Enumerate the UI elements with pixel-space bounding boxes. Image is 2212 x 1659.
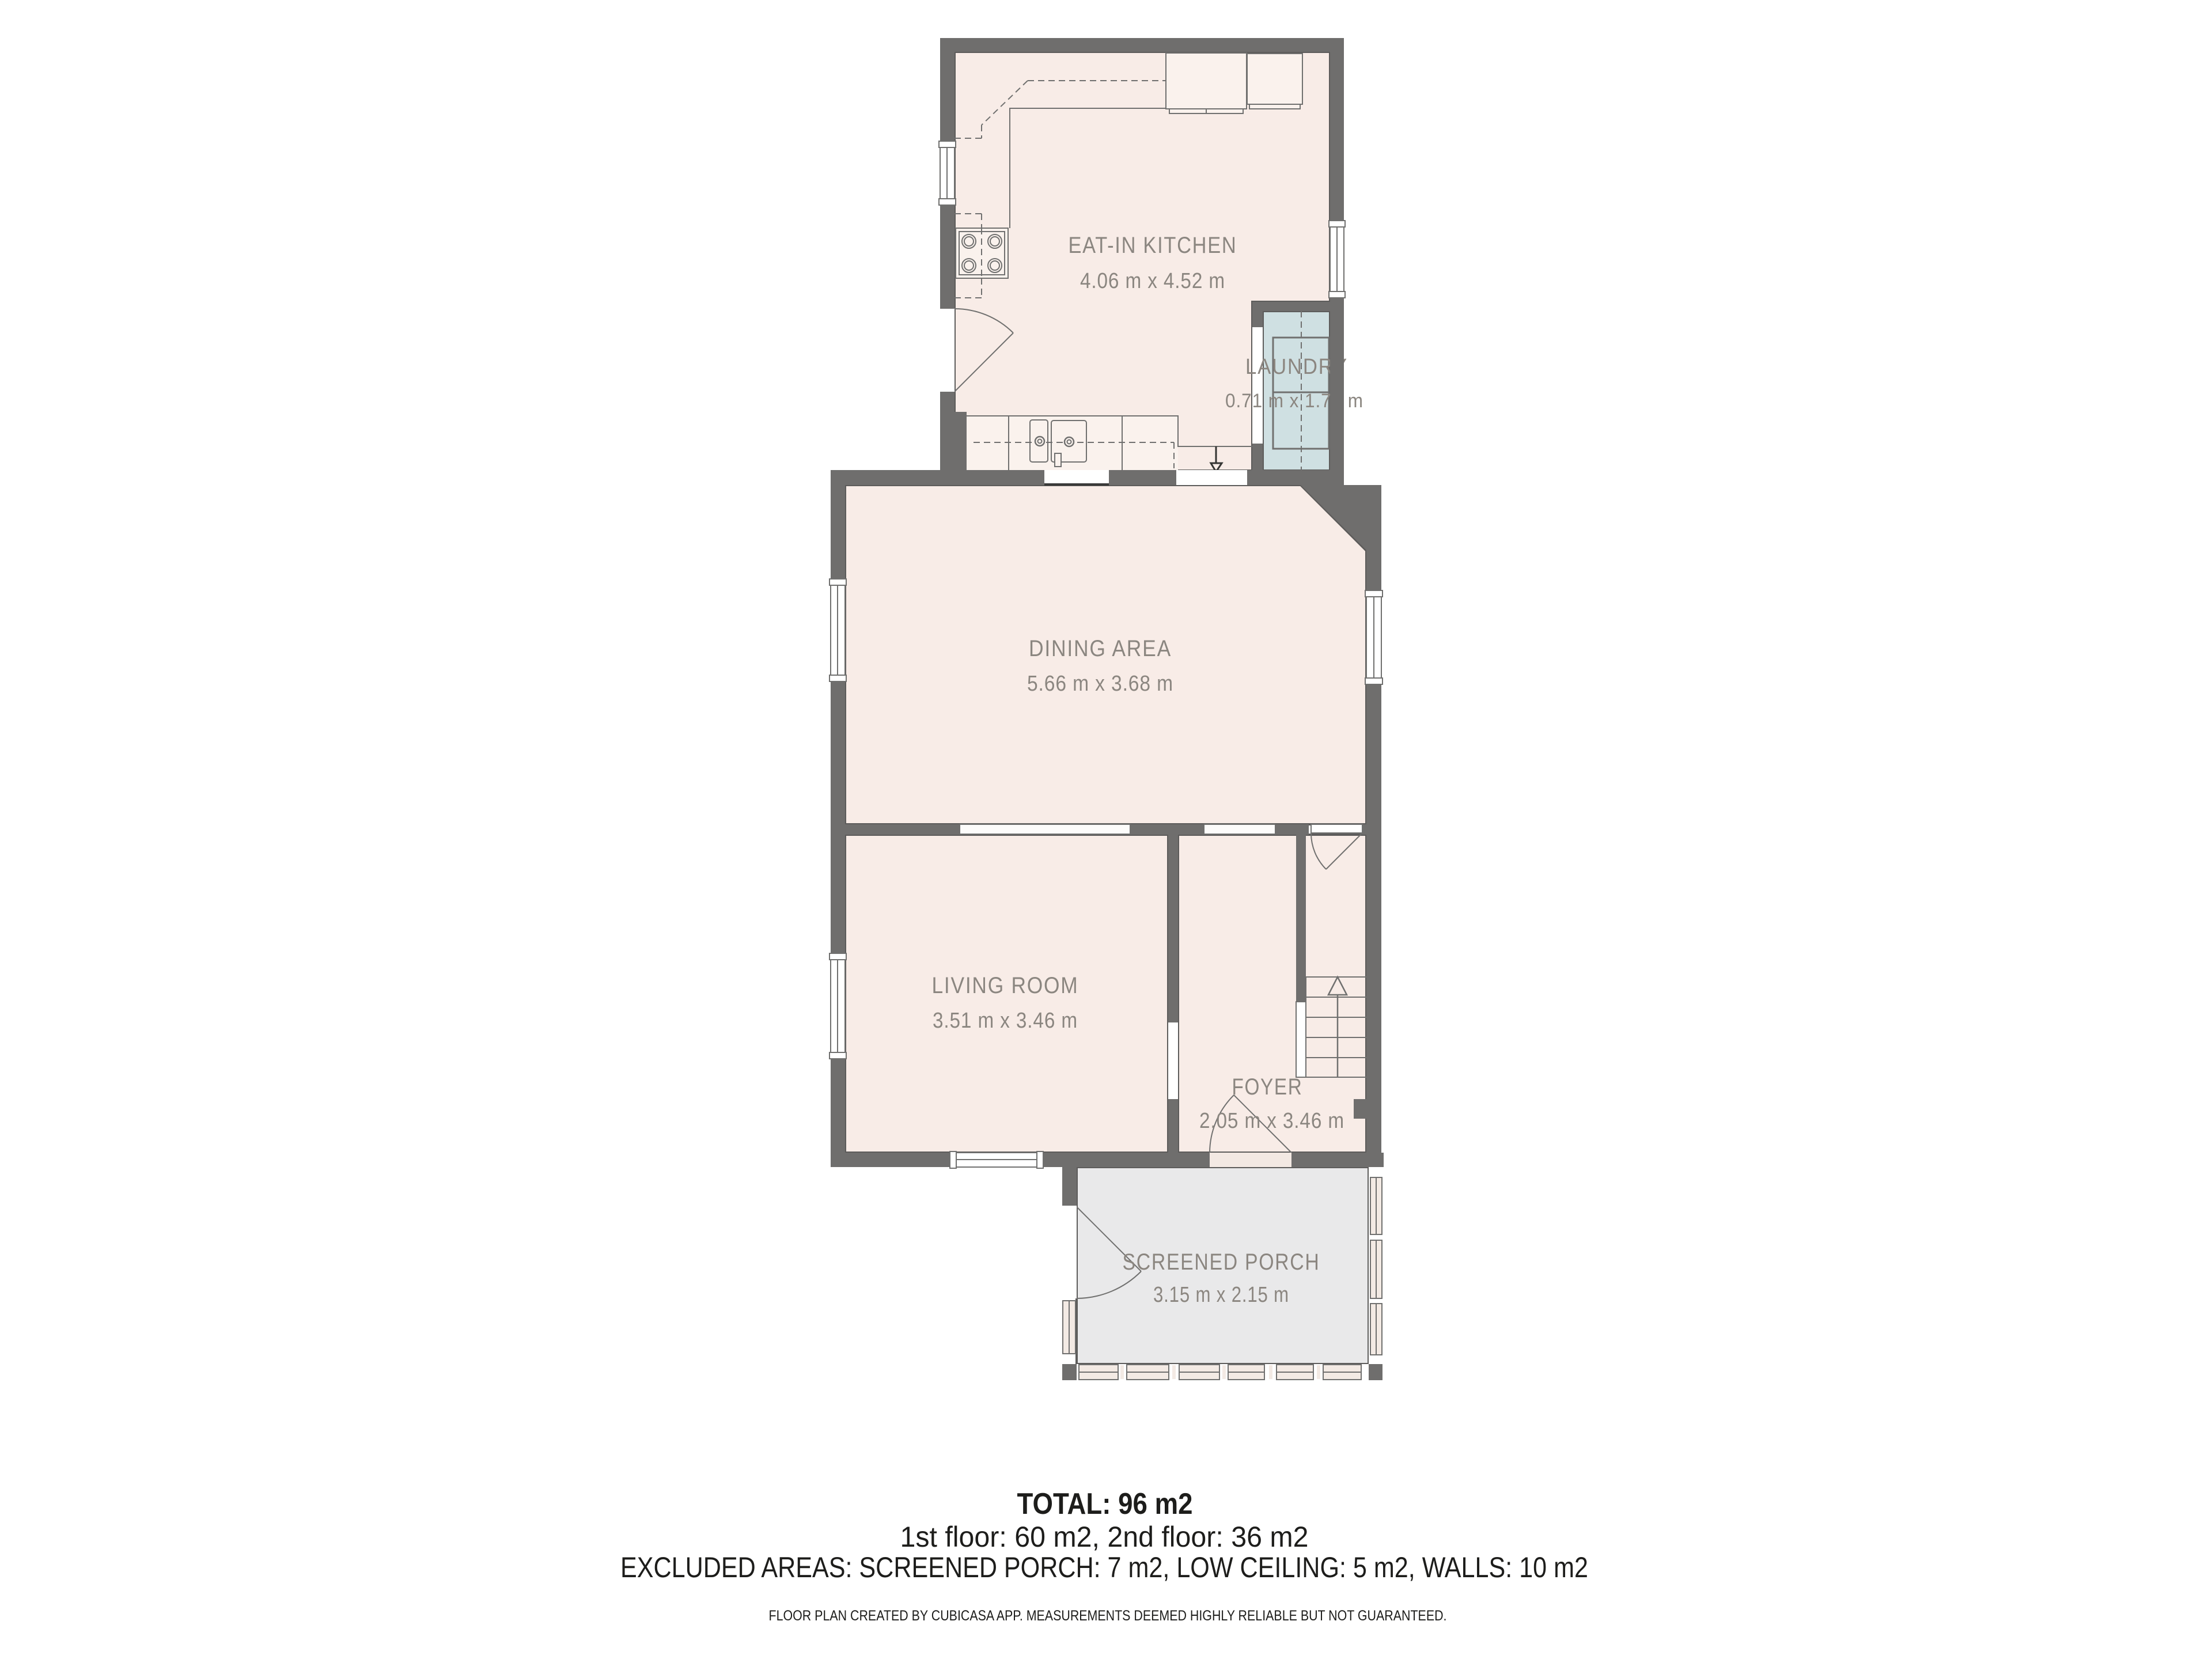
svg-text:5.66 m x 3.68 m: 5.66 m x 3.68 m	[1027, 672, 1173, 696]
svg-text:1st floor: 60 m2, 2nd floor: 3: 1st floor: 60 m2, 2nd floor: 36 m2	[900, 1521, 1309, 1553]
svg-text:TOTAL: 96 m2: TOTAL: 96 m2	[1017, 1487, 1193, 1521]
svg-text:DINING AREA: DINING AREA	[1029, 636, 1172, 661]
svg-text:EAT-IN KITCHEN: EAT-IN KITCHEN	[1069, 233, 1237, 258]
svg-text:FOYER: FOYER	[1232, 1074, 1303, 1100]
svg-text:4.06 m x 4.52 m: 4.06 m x 4.52 m	[1080, 269, 1225, 293]
svg-text:SCREENED PORCH: SCREENED PORCH	[1123, 1249, 1320, 1275]
svg-text:3.15 m x 2.15 m: 3.15 m x 2.15 m	[1153, 1283, 1289, 1307]
svg-text:EXCLUDED AREAS: SCREENED PORCH: EXCLUDED AREAS: SCREENED PORCH: 7 m2, LO…	[620, 1551, 1588, 1584]
svg-text:LIVING ROOM: LIVING ROOM	[932, 973, 1079, 998]
svg-text:3.51 m x 3.46 m: 3.51 m x 3.46 m	[933, 1009, 1078, 1033]
svg-text:FLOOR PLAN CREATED BY CUBICASA: FLOOR PLAN CREATED BY CUBICASA APP. MEAS…	[769, 1608, 1447, 1624]
svg-text:2.05 m x 3.46 m: 2.05 m x 3.46 m	[1199, 1109, 1344, 1133]
